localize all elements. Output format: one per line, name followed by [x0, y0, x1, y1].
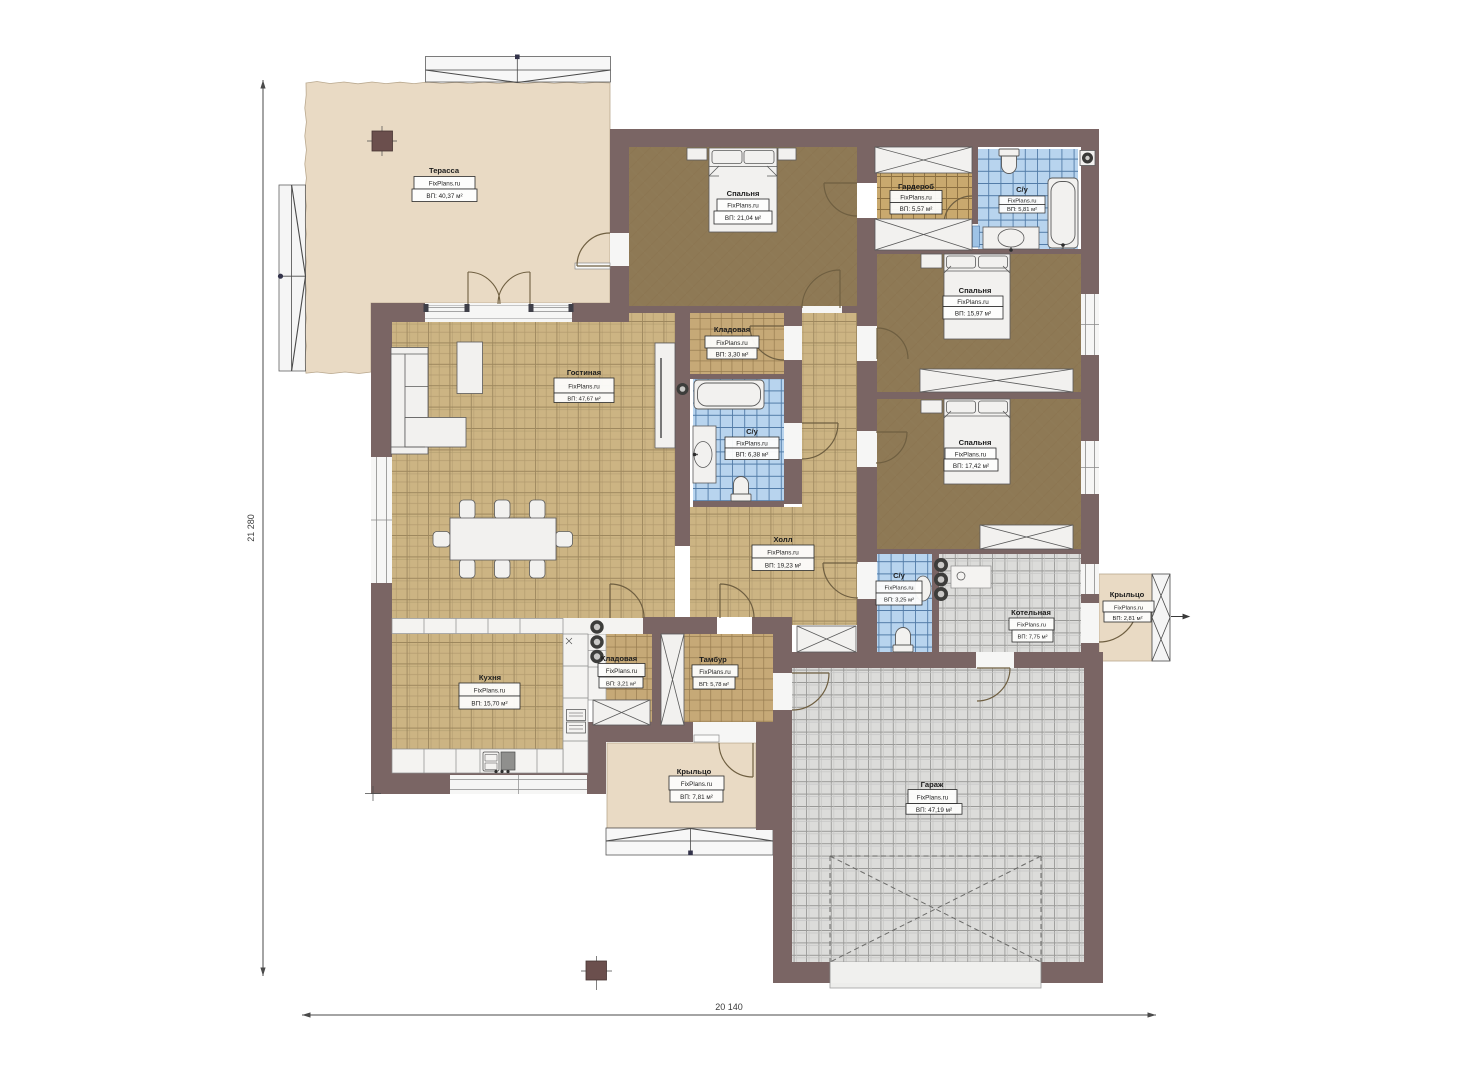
svg-text:FixPlans.ru: FixPlans.ru — [957, 299, 989, 306]
svg-text:Гостиная: Гостиная — [567, 368, 601, 377]
svg-text:FixPlans.ru: FixPlans.ru — [699, 669, 731, 676]
svg-text:ВП: 3,25 м²: ВП: 3,25 м² — [884, 598, 914, 604]
svg-text:21 280: 21 280 — [246, 514, 256, 542]
svg-text:Гараж: Гараж — [921, 780, 944, 789]
svg-text:ВП: 7,81 м²: ВП: 7,81 м² — [680, 794, 713, 801]
svg-text:FixPlans.ru: FixPlans.ru — [917, 795, 949, 802]
svg-text:FixPlans.ru: FixPlans.ru — [429, 181, 461, 188]
svg-text:Спальня: Спальня — [959, 438, 992, 447]
svg-text:ВП: 21,04 м²: ВП: 21,04 м² — [725, 215, 761, 222]
svg-text:ВП: 15,70 м²: ВП: 15,70 м² — [471, 700, 507, 707]
svg-text:Гардероб: Гардероб — [898, 182, 934, 191]
svg-text:Крыльцо: Крыльцо — [677, 767, 712, 776]
svg-text:ВП: 40,37 м²: ВП: 40,37 м² — [426, 193, 462, 200]
svg-text:ВП: 17,42 м²: ВП: 17,42 м² — [953, 463, 989, 470]
svg-text:20 140: 20 140 — [715, 1002, 743, 1012]
svg-text:ВП: 2,81 м²: ВП: 2,81 м² — [1112, 616, 1142, 622]
svg-text:FixPlans.ru: FixPlans.ru — [716, 340, 748, 347]
svg-text:Спальня: Спальня — [727, 189, 760, 198]
svg-text:FixPlans.ru: FixPlans.ru — [606, 668, 638, 675]
svg-text:FixPlans.ru: FixPlans.ru — [885, 586, 914, 592]
svg-text:С/у: С/у — [746, 427, 759, 436]
svg-text:FixPlans.ru: FixPlans.ru — [955, 451, 987, 458]
svg-text:ВП: 3,30 м²: ВП: 3,30 м² — [716, 351, 749, 358]
svg-text:Тамбур: Тамбур — [699, 655, 727, 664]
svg-text:FixPlans.ru: FixPlans.ru — [1017, 623, 1046, 629]
svg-text:Терасса: Терасса — [429, 166, 460, 175]
svg-text:Спальня: Спальня — [959, 286, 992, 295]
svg-text:ВП: 19,23 м²: ВП: 19,23 м² — [765, 562, 801, 569]
svg-text:ВП: 47,67 м²: ВП: 47,67 м² — [567, 397, 600, 403]
svg-text:ВП: 7,75 м²: ВП: 7,75 м² — [1017, 635, 1047, 641]
svg-text:ВП: 5,57 м²: ВП: 5,57 м² — [900, 206, 933, 213]
svg-text:Крыльцо: Крыльцо — [1110, 590, 1145, 599]
svg-text:ВП: 5,81 м²: ВП: 5,81 м² — [1007, 207, 1037, 213]
svg-text:Холл: Холл — [773, 535, 792, 544]
svg-text:ВП: 5,78 м²: ВП: 5,78 м² — [699, 682, 729, 688]
svg-text:FixPlans.ru: FixPlans.ru — [681, 781, 713, 788]
svg-text:FixPlans.ru: FixPlans.ru — [1008, 199, 1037, 205]
svg-text:ВП: 47,19 м²: ВП: 47,19 м² — [916, 807, 952, 814]
svg-text:FixPlans.ru: FixPlans.ru — [727, 203, 759, 210]
svg-text:FixPlans.ru: FixPlans.ru — [767, 549, 799, 556]
svg-text:FixPlans.ru: FixPlans.ru — [900, 195, 932, 202]
svg-text:Кладовая: Кладовая — [714, 325, 750, 334]
svg-text:FixPlans.ru: FixPlans.ru — [568, 383, 600, 390]
svg-text:С/у: С/у — [1016, 185, 1029, 194]
svg-text:FixPlans.ru: FixPlans.ru — [1114, 605, 1143, 611]
svg-text:ВП: 6,38 м²: ВП: 6,38 м² — [736, 452, 769, 459]
svg-text:ВП: 3,21 м²: ВП: 3,21 м² — [606, 681, 636, 687]
svg-text:Кухня: Кухня — [479, 673, 501, 682]
svg-text:ВП: 15,97 м²: ВП: 15,97 м² — [955, 311, 991, 318]
svg-text:С/у: С/у — [893, 571, 906, 580]
svg-text:FixPlans.ru: FixPlans.ru — [474, 687, 506, 694]
svg-text:Котельная: Котельная — [1011, 608, 1051, 617]
svg-text:FixPlans.ru: FixPlans.ru — [736, 440, 768, 447]
svg-text:Кладовая: Кладовая — [601, 654, 637, 663]
